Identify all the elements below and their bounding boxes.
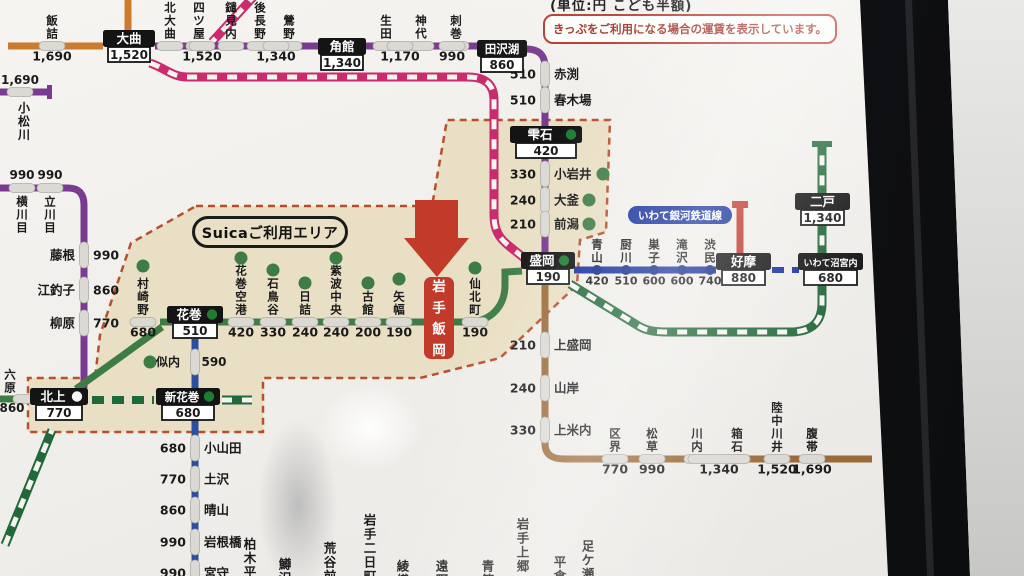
fare-1340: 1,340 (256, 49, 296, 64)
station-kuriyagawa-fare: 510 (615, 275, 638, 288)
station-fujine-tick (80, 242, 89, 268)
station-rikuchukawai-fare: 1,520 (757, 462, 797, 477)
station-box-morioka-fare: 190 (535, 270, 560, 284)
station-oyamada-tick (191, 435, 200, 461)
station-haratai-fare: 1,690 (792, 462, 832, 477)
station-senbokucho-dot (469, 262, 482, 275)
station-box-shizukuishi-suica-circle (566, 129, 576, 139)
fare-nitanai: 590 (201, 355, 226, 369)
station-iwatekamigo: 岩手上郷 (516, 517, 530, 574)
station-tsuchizawa-tick (191, 466, 200, 492)
station-nitanai: 似内 (155, 354, 180, 369)
station-kitaomagari: 北大曲 (164, 1, 176, 41)
station-box-iwatenumakunai-fare: 680 (818, 271, 843, 285)
station-akabuchi-tick (541, 61, 550, 87)
station-shiwachuo: 紫波中央 (330, 264, 342, 317)
station-maekata: 前潟 (554, 217, 580, 232)
station-box-omagari-fare: 1,520 (110, 48, 148, 62)
station-aratamae: 荒谷前 (323, 541, 337, 576)
station-iwanebashi: 岩根橋 (203, 535, 242, 550)
fare-rokuhara: 860 (0, 401, 25, 415)
station-ishidoriya-dot (267, 264, 280, 277)
station-harukiba: 春木場 (553, 93, 592, 108)
station-box-morioka-name: 盛岡 (529, 253, 554, 268)
station-box-shinhanamaki-fare: 680 (175, 406, 200, 420)
station-box-kitakami-fare: 770 (46, 406, 71, 420)
station-yamagishi-fare: 240 (510, 381, 536, 396)
station-box-morioka-suica-circle (559, 255, 569, 265)
station-hizume: 日詰 (299, 290, 311, 317)
station-tono: 遠野 (436, 559, 449, 576)
unit-caption: (単位:円 こども半額) (550, 0, 692, 14)
station-kuzakai: 区界 (609, 427, 621, 454)
station-akabuchi: 赤渕 (554, 67, 579, 82)
station-kamiyonai-fare: 330 (510, 423, 536, 438)
station-yokokawame-tick (9, 184, 35, 193)
station-kitaomagari-tick (157, 42, 183, 51)
station-ugonagano: 羽後長野 (254, 0, 266, 41)
station-hirakura: 平倉 (553, 555, 567, 576)
station-masuzawa: 鱒沢 (278, 557, 292, 576)
station-box-omagari-name: 大曲 (116, 31, 141, 46)
station-yamagishi: 山岸 (554, 381, 580, 396)
station-hareyama-fare: 860 (160, 503, 186, 518)
station-kamiyonai: 上米内 (554, 423, 592, 438)
station-nitanai-tick (191, 349, 200, 375)
line-kitakami-west-endcap (47, 85, 52, 99)
station-box-koma-name: 好摩 (730, 254, 757, 269)
station-ashigase: 足ケ瀬 (581, 539, 595, 576)
station-yahaba-fare: 190 (386, 325, 412, 340)
station-box-tazawako-fare: 860 (489, 58, 514, 72)
station-yamagishi-tick (541, 375, 550, 401)
station-fujine-fare: 990 (93, 248, 119, 263)
station-box-iwatenumakunai-name: いわて沼宮内 (803, 257, 857, 269)
line-tazawako-bend (526, 49, 545, 126)
fare-990: 990 (439, 49, 465, 64)
station-ishidoriya: 石鳥谷 (266, 277, 279, 317)
station-iizume: 飯詰 (45, 14, 58, 41)
station-iwatefutsukamachi: 岩手二日町 (363, 513, 377, 576)
station-shibutami-dot (705, 265, 715, 275)
station-harukiba-fare: 510 (510, 93, 536, 108)
station-jindai: 神代 (414, 14, 427, 41)
station-rikuchukawai: 陸中川井 (770, 401, 783, 454)
station-ezuriko-tick (80, 277, 89, 303)
fare-kawauchi-hakoishi: 1,340 (699, 462, 739, 477)
station-kuriyagawa-dot (621, 265, 631, 275)
station-takizawa-fare: 600 (671, 275, 694, 288)
station-ugoyotsuya: 羽後四ツ屋 (193, 0, 205, 41)
station-furudate-dot (362, 277, 375, 290)
station-box-hanamaki-suica-circle (207, 309, 217, 319)
station-sugo: 巣子 (647, 238, 660, 265)
station-box-shizukuishi-fare: 420 (533, 144, 558, 158)
station-uguisuno: 鶯野 (283, 14, 295, 41)
station-rokuhara: 六原 (4, 368, 16, 395)
station-box-kitakami-name: 北上 (40, 389, 66, 404)
station-iizume-fare: 1,690 (32, 49, 72, 64)
station-kashiwagidaira: 柏木平 (243, 537, 257, 576)
station-murasakino-fare: 680 (130, 325, 156, 340)
station-tatekawame-tick (37, 184, 63, 193)
station-shiwachuo-fare: 240 (323, 325, 349, 340)
station-hakoishi: 箱石 (730, 427, 743, 454)
station-komatsukawa-tick (7, 88, 33, 97)
station-senbokucho: 仙北町 (469, 277, 481, 317)
station-maekata-fare: 210 (510, 217, 536, 232)
station-hareyama-tick (191, 497, 200, 523)
station-yahaba-dot (393, 273, 406, 286)
station-tsuchizawa: 土沢 (204, 472, 230, 487)
station-iwanebashi-tick (191, 529, 200, 555)
station-okama-dot (583, 194, 596, 207)
fare-map-canvas: 飯詰1,690北大曲羽後四ツ屋鑓見内羽後長野鶯野生田神代刺巻1,5201,340… (0, 0, 1024, 576)
station-box-hanamaki-fare: 510 (182, 324, 207, 338)
station-shoden: 生田 (380, 14, 392, 41)
station-yokokawame-fare: 990 (9, 168, 34, 182)
station-hanamakikuko-fare: 420 (228, 325, 254, 340)
station-oyamada-fare: 680 (160, 441, 186, 456)
station-fare-map-photo: 飯詰1,690北大曲羽後四ツ屋鑓見内羽後長野鶯野生田神代刺巻1,5201,340… (0, 0, 1024, 576)
station-koiwai-fare: 330 (510, 167, 536, 182)
station-box-koma-fare: 880 (731, 271, 756, 285)
station-hizume-dot (299, 277, 312, 290)
station-box-shinhanamaki-name: 新花巻 (165, 390, 200, 404)
station-nitanai-dot (144, 356, 157, 369)
fare-komatsukawa: 1,690 (1, 73, 39, 87)
station-tatekawame: 立川目 (43, 195, 56, 235)
station-box-kakunodate-name: 角館 (329, 39, 354, 54)
station-furudate-fare: 200 (355, 325, 381, 340)
station-yariminai: 鑓見内 (224, 1, 237, 41)
station-yokokawame: 横川目 (15, 195, 28, 235)
fare-map-sign: 飯詰1,690北大曲羽後四ツ屋鑓見内羽後長野鶯野生田神代刺巻1,5201,340… (0, 0, 1024, 576)
station-kamimorioka: 上盛岡 (554, 338, 592, 353)
station-hizume-fare: 240 (292, 325, 318, 340)
station-takizawa: 滝沢 (676, 238, 688, 265)
station-matsukusa-fare: 990 (639, 462, 665, 477)
station-box-ninohe-name: 二戸 (810, 194, 835, 209)
station-box-shinhanamaki-suica-circle (204, 391, 214, 401)
station-fujine: 藤根 (49, 248, 76, 263)
suica-area-label: Suicaご利用エリア (192, 216, 348, 248)
station-okama: 大釜 (554, 193, 580, 208)
station-yariminai-tick (218, 42, 244, 51)
station-koiwai: 小岩井 (553, 167, 592, 182)
station-hareyama: 晴山 (204, 503, 229, 518)
station-aozasa: 青笹 (481, 559, 495, 576)
station-kamimorioka-fare: 210 (510, 338, 536, 353)
station-aoyama-dot (592, 265, 602, 275)
station-sugo-fare: 600 (643, 275, 666, 288)
station-box-kitakami-suica-circle (72, 391, 82, 401)
station-ayaori: 綾織 (397, 559, 410, 576)
station-murasakino-dot (137, 260, 150, 273)
station-box-kakunodate-fare: 1,340 (323, 56, 361, 70)
station-shibutami-fare: 740 (699, 275, 722, 288)
station-miyamori: 宮守 (204, 566, 230, 576)
station-ishidoriya-fare: 330 (260, 325, 286, 340)
station-oyamada: 小山田 (203, 441, 242, 456)
station-kawauchi: 川内 (690, 427, 703, 454)
station-koiwai-tick (541, 161, 550, 187)
station-maekata-dot (583, 218, 596, 231)
station-box-tazawako-name: 田沢湖 (485, 42, 520, 56)
station-tsuchizawa-fare: 770 (160, 472, 186, 487)
station-tatekawame-fare: 990 (37, 168, 62, 182)
fare-1520: 1,520 (182, 49, 222, 64)
station-komatsukawa: 小松川 (17, 100, 30, 142)
station-okama-tick (541, 187, 550, 213)
station-box-ninohe-fare: 1,340 (804, 211, 842, 225)
station-harukiba-tick (541, 87, 550, 113)
igr-line-label: いわて銀河鉄道線 (628, 206, 732, 224)
station-yanagihara-tick (80, 310, 89, 336)
station-matsukusa: 松草 (646, 427, 658, 454)
station-miyamori-tick (191, 560, 200, 576)
station-murasakino: 村崎野 (137, 277, 149, 317)
station-ezuriko: 江釣子 (37, 283, 75, 298)
station-furudate: 古館 (361, 290, 374, 317)
station-iwanebashi-fare: 990 (160, 535, 186, 550)
station-yanagihara: 柳原 (50, 316, 76, 331)
notice-box: きっぷをご利用になる場合の運賃を表示しています。 (543, 14, 837, 44)
station-kuriyagawa: 厨川 (619, 238, 632, 265)
station-shibutami: 渋民 (704, 238, 716, 265)
station-ezuriko-fare: 860 (93, 283, 119, 298)
station-yahaba: 矢幅 (393, 290, 405, 317)
station-aoyama-fare: 420 (586, 275, 609, 288)
station-box-hanamaki-name: 花巻 (176, 307, 202, 322)
station-box-shizukuishi-name: 雫石 (527, 127, 552, 142)
station-maekata-tick (541, 211, 550, 237)
station-sugo-dot (649, 265, 659, 275)
line-hanawa-endcap (732, 201, 748, 208)
station-sashimaki: 刺巻 (449, 14, 462, 41)
station-senbokucho-fare: 190 (462, 325, 488, 340)
station-takizawa-dot (677, 265, 687, 275)
station-okama-fare: 240 (510, 193, 536, 208)
station-miyamori-fare: 990 (160, 566, 186, 576)
station-kamimorioka-tick (541, 332, 550, 358)
station-hanamakikuko: 花巻空港 (234, 264, 247, 317)
fare-1170: 1,170 (380, 49, 420, 64)
station-aoyama: 青山 (591, 238, 603, 265)
line-shinkansen-endcap (812, 141, 832, 147)
station-kamiyonai-tick (541, 417, 550, 443)
station-haratai: 腹帯 (806, 427, 818, 454)
station-kuzakai-fare: 770 (602, 462, 628, 477)
station-yanagihara-fare: 770 (93, 316, 119, 331)
station-koiwai-dot (597, 168, 610, 181)
